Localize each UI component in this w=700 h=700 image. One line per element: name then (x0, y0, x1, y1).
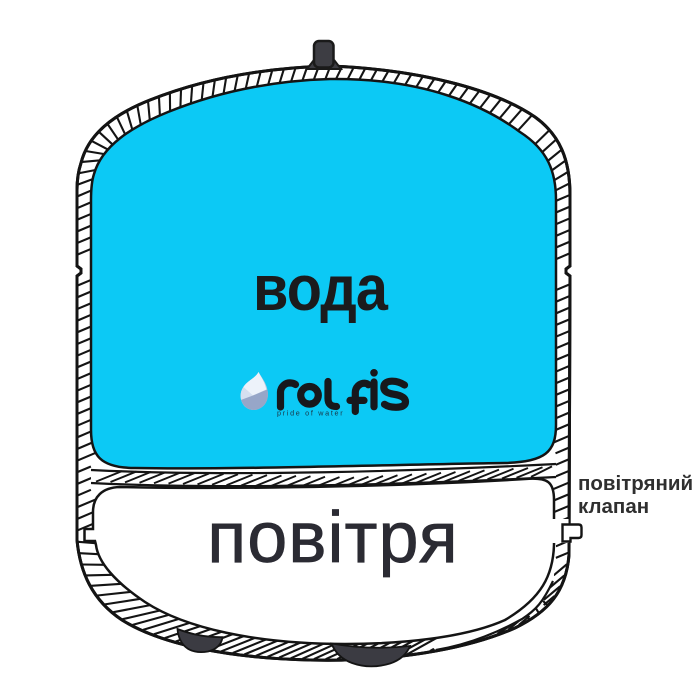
svg-text:вода: вода (253, 252, 389, 323)
svg-text:клапан: клапан (578, 495, 649, 518)
svg-text:повітря: повітря (207, 498, 458, 578)
svg-text:повітряний: повітряний (578, 472, 693, 495)
svg-text:pride of water: pride of water (277, 409, 344, 418)
